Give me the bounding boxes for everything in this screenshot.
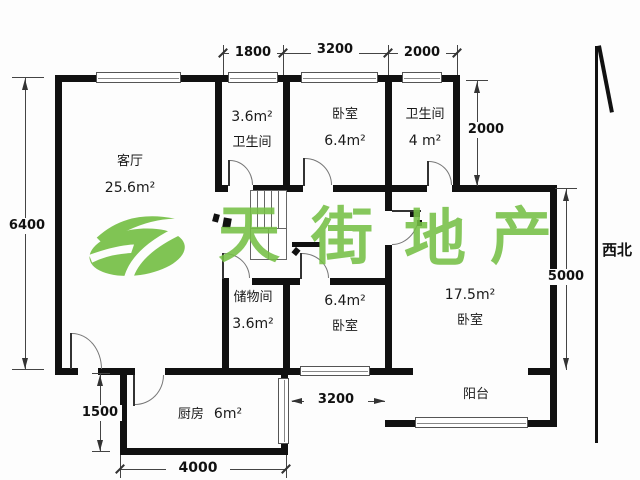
wall xyxy=(385,75,392,187)
room-label-bed-top: 卧室 6.4m² xyxy=(312,102,378,154)
window xyxy=(415,417,528,428)
wall xyxy=(120,448,288,455)
floor-plan: 1800 3200 2000 6400 2000 5000 1500 4000 … xyxy=(0,0,640,480)
dim-label-2000-top: 2000 xyxy=(398,45,446,61)
wall xyxy=(385,368,413,375)
window xyxy=(402,72,442,83)
bathroom2-door-arc xyxy=(429,161,452,185)
window xyxy=(96,72,181,83)
room-name: 厨房 xyxy=(178,407,204,422)
room-label-storage: 储物间 3.6m² xyxy=(220,285,286,337)
room-area: 3.6m² xyxy=(220,311,286,337)
dim-arrow xyxy=(374,398,385,404)
room-name: 卫生间 xyxy=(396,102,454,128)
room-area: 6.4m² xyxy=(312,128,378,154)
wall xyxy=(330,278,392,285)
wall xyxy=(453,75,460,192)
dim-cap xyxy=(12,369,44,370)
watermark-char: 天 xyxy=(218,204,280,266)
window xyxy=(228,72,278,83)
dim-arrow xyxy=(563,190,569,201)
wall xyxy=(385,245,392,368)
dim-arrow xyxy=(22,358,28,369)
room-area: 17.5m² xyxy=(424,282,516,308)
room-label-living: 客厅 25.6m² xyxy=(90,149,170,201)
wall xyxy=(452,185,557,192)
dim-arrow xyxy=(474,175,480,186)
dim-label-4000: 4000 xyxy=(166,460,230,476)
dim-arrow xyxy=(563,358,569,369)
wall xyxy=(385,185,427,192)
dim-label-2000-right: 2000 xyxy=(461,122,511,138)
dim-label-6400: 6400 xyxy=(4,218,50,234)
room-label-bed-big: 17.5m² 卧室 xyxy=(424,282,516,334)
dim-cap xyxy=(92,373,110,374)
watermark-logo xyxy=(86,206,190,276)
north-arrow-line xyxy=(595,46,598,443)
kitchen-door-arc xyxy=(135,375,164,405)
room-name: 卧室 xyxy=(424,308,516,334)
room-name: 卧室 xyxy=(312,314,378,340)
room-label-balcony: 阳台 xyxy=(444,382,508,408)
room-area: 25.6m² xyxy=(90,175,170,201)
wall xyxy=(215,185,228,192)
room-name: 卫生间 xyxy=(220,130,284,156)
room-name: 卧室 xyxy=(312,102,378,128)
leaf-logo-icon xyxy=(86,206,190,276)
watermark-char: 地 xyxy=(404,208,466,270)
dim-arrow xyxy=(97,375,103,386)
dim-arrow xyxy=(474,82,480,93)
wall xyxy=(252,278,300,285)
dim-cap xyxy=(12,77,44,78)
wall xyxy=(283,75,290,187)
north-arrow-barb xyxy=(597,45,614,113)
room-label-kitchen: 厨房6m² xyxy=(150,403,270,426)
wall xyxy=(55,75,62,375)
dim-label-3200-top: 3200 xyxy=(311,42,359,58)
compass-label: 西北 xyxy=(602,239,632,260)
room-area: 4 m² xyxy=(396,128,454,154)
room-name: 客厅 xyxy=(90,149,170,175)
watermark-char: 产 xyxy=(490,206,552,268)
room-area: 6m² xyxy=(214,406,242,422)
dim-label-3200-mid: 3200 xyxy=(304,392,368,408)
room-label-bath-right: 卫生间 4 m² xyxy=(396,102,454,154)
dim-label-1800: 1800 xyxy=(229,45,277,61)
window xyxy=(278,378,289,444)
dim-arrow xyxy=(97,440,103,451)
room-name: 阳台 xyxy=(444,382,508,408)
window xyxy=(301,72,378,83)
wall xyxy=(165,368,290,375)
dim-arrow xyxy=(22,79,28,90)
room-name: 储物间 xyxy=(220,285,286,311)
room-area: 6.4m² xyxy=(312,288,378,314)
entry-door-arc xyxy=(72,333,102,369)
room-label-bath-top: 3.6m² 卫生间 xyxy=(220,104,284,156)
wall xyxy=(55,368,78,375)
dim-arrow xyxy=(291,398,302,404)
room-area: 3.6m² xyxy=(220,104,284,130)
window xyxy=(300,366,370,376)
room-label-bed-mid: 6.4m² 卧室 xyxy=(312,288,378,340)
wall xyxy=(528,368,557,375)
wall xyxy=(290,185,303,192)
wall xyxy=(385,192,392,211)
bedroom-top-door-arc xyxy=(305,158,332,185)
wall xyxy=(333,185,385,192)
dim-cap xyxy=(92,451,110,452)
watermark-char: 街 xyxy=(311,206,373,268)
bathroom1-door-arc xyxy=(230,160,253,185)
dim-label-1500: 1500 xyxy=(78,405,122,421)
